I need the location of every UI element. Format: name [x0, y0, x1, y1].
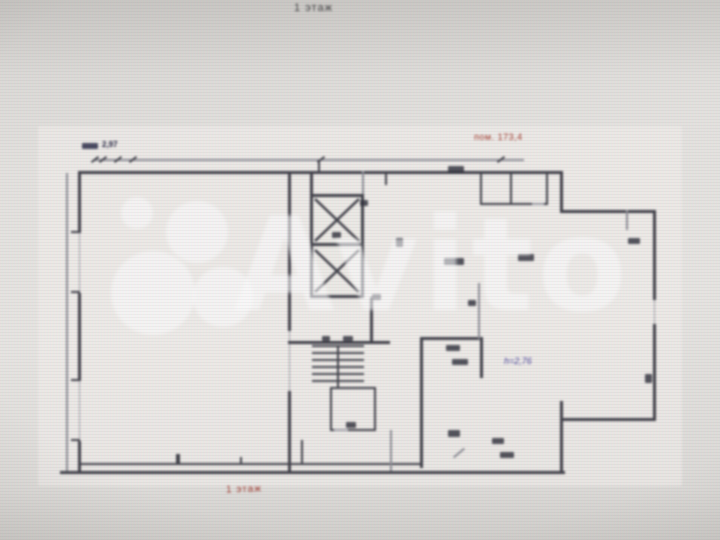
avito-logo-dot-top-right — [166, 201, 228, 263]
avito-logo-dot-small — [121, 197, 153, 229]
avito-watermark-text: Avito — [234, 200, 631, 330]
photo-of-floor-plan: { "photo": { "floor_title_top": "1 этаж"… — [0, 0, 720, 540]
avito-logo-dot-large — [111, 251, 195, 335]
watermark-layer: Avito — [0, 0, 720, 540]
